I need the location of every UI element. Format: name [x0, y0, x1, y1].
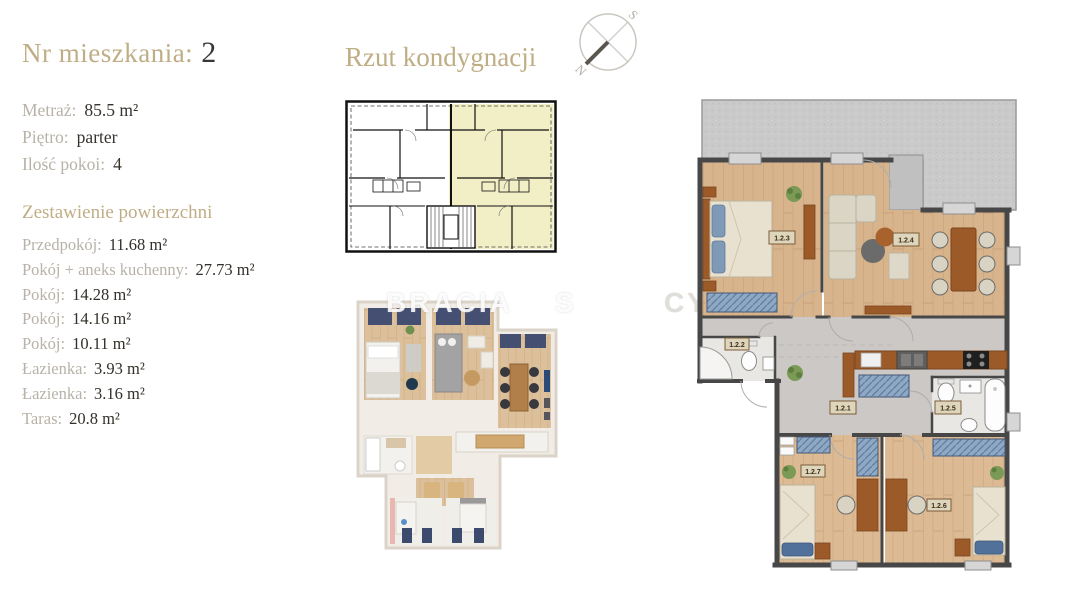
render-bathroom — [364, 436, 412, 474]
render-3d-floorplan — [348, 286, 566, 560]
floor-plan-title: Rzut kondygnacji — [345, 42, 536, 73]
apartment-offer-page: Nr mieszkania:2 Metraż:85.5 m² Piętro:pa… — [0, 0, 1076, 599]
detail-value: parter — [77, 127, 118, 147]
area-value: 3.93 m² — [94, 359, 145, 378]
area-value: 14.28 m² — [72, 285, 131, 304]
apartment-number-label: Nr mieszkania: — [22, 38, 193, 68]
area-value: 27.73 m² — [196, 260, 255, 279]
apartment-details: Metraż:85.5 m² Piętro:parter Ilość pokoi… — [22, 97, 332, 178]
apartment-info-panel: Nr mieszkania:2 Metraż:85.5 m² Piętro:pa… — [22, 36, 332, 431]
detail-label: Ilość pokoi: — [22, 154, 105, 174]
room-label-text: 1.2.1 — [835, 406, 851, 413]
apartment-floorplan: 1.2.3 1.2.4 1.2.2 1.2.1 1.2.5 1.2.7 — [683, 95, 1027, 579]
area-row: Łazienka:3.93 m² — [22, 357, 332, 382]
compass-south-label: S — [626, 7, 642, 23]
room-label-text: 1.2.7 — [805, 469, 821, 476]
room-label: 1.2.5 — [935, 401, 961, 414]
render-bedroom-bottomright — [446, 498, 496, 544]
area-row: Taras:20.8 m² — [22, 407, 332, 432]
page-title: Nr mieszkania:2 — [22, 36, 332, 70]
detail-label: Piętro: — [22, 127, 69, 147]
room-label-text: 1.2.3 — [774, 236, 790, 243]
area-row: Przedpokój:11.68 m² — [22, 233, 332, 258]
room-label: 1.2.2 — [725, 338, 749, 350]
kitchen-counter — [855, 351, 1007, 369]
areas-list: Przedpokój:11.68 m² Pokój + aneks kuchen… — [22, 233, 332, 431]
building-floor-schematic — [345, 100, 557, 253]
area-label: Przedpokój: — [22, 235, 102, 254]
wardrobe-hall — [859, 375, 909, 397]
detail-value: 85.5 m² — [84, 100, 138, 120]
area-label: Pokój: — [22, 285, 65, 304]
render-bedroom-bottomleft — [390, 498, 442, 544]
area-label: Pokój + aneks kuchenny: — [22, 260, 189, 279]
armchair-round — [876, 228, 895, 247]
room-label: 1.2.7 — [801, 465, 825, 477]
compass-icon: S N — [572, 2, 644, 80]
dining-set — [932, 228, 995, 295]
area-row: Pokój:10.11 m² — [22, 332, 332, 357]
terrace-wall-jog — [889, 155, 923, 210]
plant-icon — [787, 365, 803, 381]
area-row: Pokój + aneks kuchenny:27.73 m² — [22, 258, 332, 283]
area-row: Pokój:14.28 m² — [22, 283, 332, 308]
room-label-text: 1.2.4 — [898, 238, 914, 245]
area-value: 11.68 m² — [109, 235, 167, 254]
area-label: Pokój: — [22, 334, 65, 353]
area-value: 3.16 m² — [94, 384, 145, 403]
plant-icon — [786, 186, 802, 202]
area-label: Łazienka: — [22, 384, 87, 403]
side-table — [889, 253, 909, 279]
area-label: Pokój: — [22, 309, 65, 328]
render-living-room — [432, 308, 494, 400]
area-label: Łazienka: — [22, 359, 87, 378]
areas-section-title: Zestawienie powierzchni — [22, 202, 332, 224]
room-label-text: 1.2.2 — [729, 342, 745, 349]
room-label-text: 1.2.6 — [931, 503, 947, 510]
detail-row: Ilość pokoi:4 — [22, 151, 332, 178]
detail-value: 4 — [113, 154, 122, 174]
schematic-stairwell — [427, 206, 475, 248]
render-bedroom-topleft — [364, 308, 426, 400]
area-row: Pokój:14.16 m² — [22, 307, 332, 332]
area-label: Taras: — [22, 409, 62, 428]
detail-row: Metraż:85.5 m² — [22, 97, 332, 124]
hall-cabinet — [843, 353, 854, 397]
area-value: 14.16 m² — [72, 309, 131, 328]
area-value: 20.8 m² — [69, 409, 120, 428]
apartment-number-value: 2 — [201, 36, 217, 69]
media-sideboard — [865, 306, 911, 314]
room-label: 1.2.1 — [830, 401, 856, 414]
room-label: 1.2.6 — [927, 499, 951, 511]
room-label-text: 1.2.5 — [940, 406, 956, 413]
double-bed — [703, 187, 772, 291]
area-row: Łazienka:3.16 m² — [22, 382, 332, 407]
room-label: 1.2.3 — [769, 231, 795, 244]
detail-label: Metraż: — [22, 100, 76, 120]
detail-row: Piętro:parter — [22, 124, 332, 151]
bench-navy — [707, 293, 777, 312]
room-label: 1.2.4 — [893, 233, 919, 246]
area-value: 10.11 m² — [72, 334, 130, 353]
tv-sideboard — [804, 205, 815, 259]
